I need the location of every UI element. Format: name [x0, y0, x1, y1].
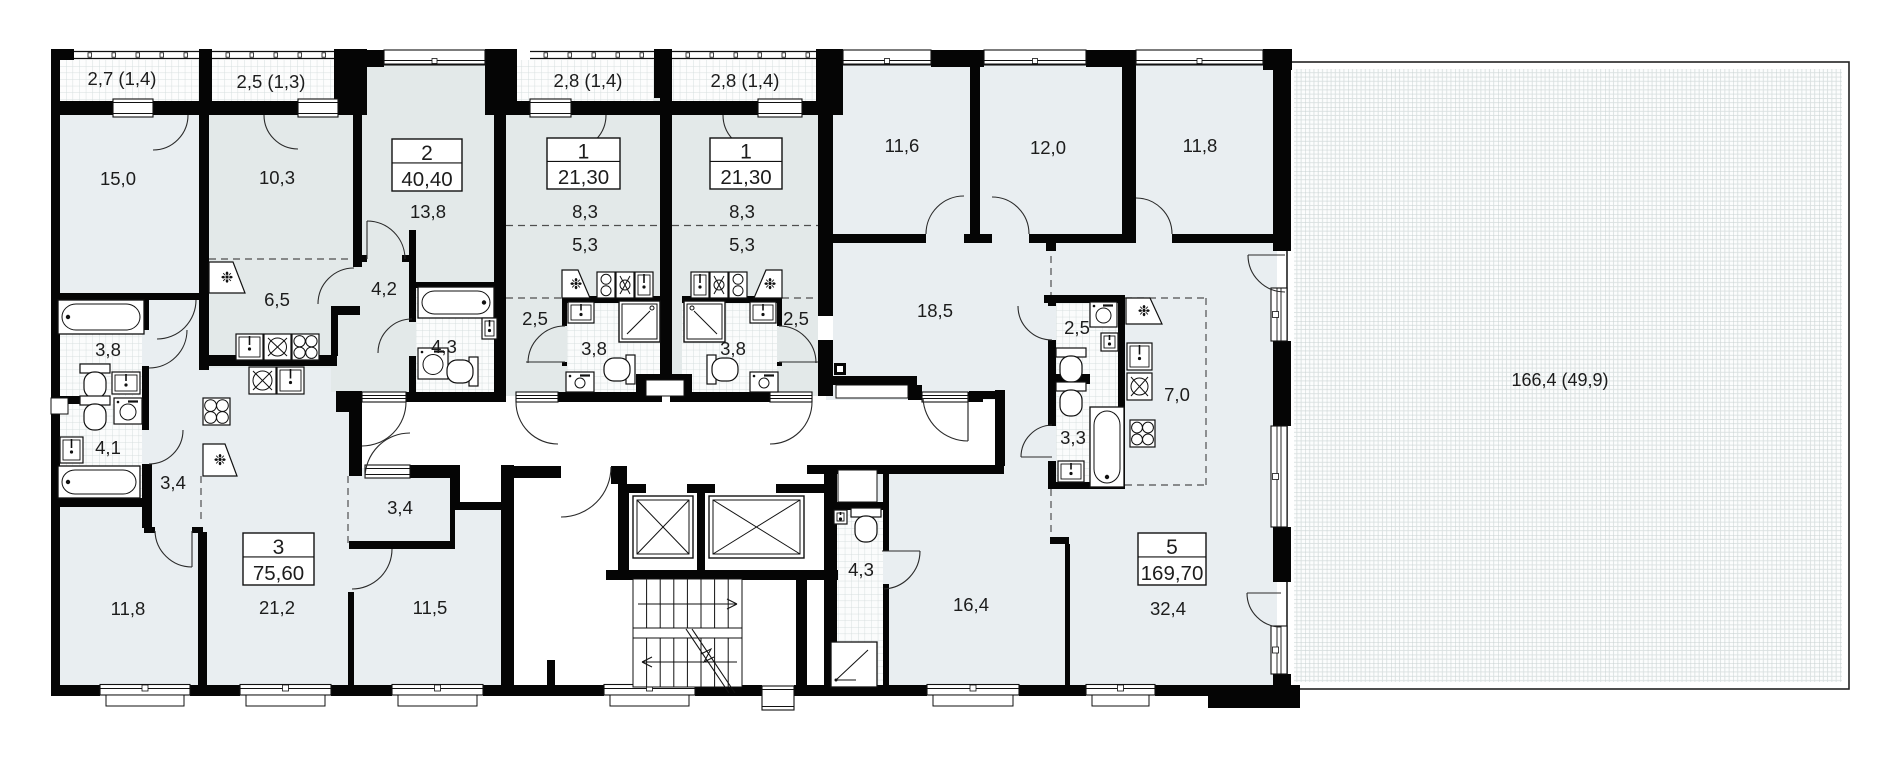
- svg-text:11,5: 11,5: [413, 597, 448, 618]
- svg-text:3,4: 3,4: [387, 497, 413, 518]
- svg-text:❉: ❉: [214, 452, 227, 469]
- svg-text:12,0: 12,0: [1030, 137, 1066, 158]
- svg-text:5,3: 5,3: [572, 234, 598, 255]
- svg-text:3,8: 3,8: [720, 338, 746, 359]
- svg-text:3: 3: [273, 536, 285, 559]
- svg-text:7,0: 7,0: [1164, 384, 1190, 405]
- svg-text:8,3: 8,3: [572, 201, 598, 222]
- svg-text:4,3: 4,3: [431, 336, 457, 357]
- svg-text:❉: ❉: [570, 276, 583, 293]
- svg-text:21,30: 21,30: [558, 166, 609, 189]
- svg-text:❉: ❉: [764, 276, 777, 293]
- svg-text:4,3: 4,3: [848, 559, 874, 580]
- svg-text:15,0: 15,0: [100, 168, 136, 189]
- svg-text:169,70: 169,70: [1141, 562, 1204, 585]
- svg-text:5: 5: [1166, 536, 1178, 559]
- svg-text:4,1: 4,1: [95, 437, 121, 458]
- svg-text:8,3: 8,3: [729, 201, 755, 222]
- svg-text:2,5: 2,5: [1064, 317, 1090, 338]
- svg-text:21,30: 21,30: [720, 166, 771, 189]
- svg-text:11,8: 11,8: [111, 598, 146, 619]
- svg-text:18,5: 18,5: [917, 300, 953, 321]
- svg-text:5,3: 5,3: [729, 234, 755, 255]
- svg-text:2,8 (1,4): 2,8 (1,4): [711, 70, 780, 91]
- svg-text:3,4: 3,4: [160, 472, 186, 493]
- svg-text:40,40: 40,40: [401, 168, 452, 191]
- svg-text:6,5: 6,5: [264, 289, 290, 310]
- svg-text:1: 1: [578, 140, 590, 163]
- svg-text:❉: ❉: [1138, 303, 1151, 320]
- svg-text:2,8 (1,4): 2,8 (1,4): [554, 70, 623, 91]
- svg-text:❉: ❉: [221, 270, 234, 287]
- svg-text:10,3: 10,3: [259, 167, 295, 188]
- svg-text:75,60: 75,60: [253, 562, 304, 585]
- svg-text:21,2: 21,2: [259, 597, 295, 618]
- svg-text:16,4: 16,4: [953, 594, 989, 615]
- svg-text:11,8: 11,8: [1183, 135, 1218, 156]
- svg-text:4,2: 4,2: [371, 278, 397, 299]
- svg-text:11,6: 11,6: [885, 135, 920, 156]
- svg-text:1: 1: [740, 140, 752, 163]
- svg-text:2,7 (1,4): 2,7 (1,4): [88, 68, 157, 89]
- svg-text:3,3: 3,3: [1060, 427, 1086, 448]
- svg-text:32,4: 32,4: [1150, 598, 1186, 619]
- svg-text:13,8: 13,8: [410, 201, 446, 222]
- svg-text:2,5 (1,3): 2,5 (1,3): [237, 71, 306, 92]
- svg-text:3,8: 3,8: [581, 338, 607, 359]
- svg-text:2: 2: [421, 142, 433, 165]
- svg-text:2,5: 2,5: [522, 308, 548, 329]
- svg-text:3,8: 3,8: [95, 339, 121, 360]
- svg-text:166,4 (49,9): 166,4 (49,9): [1511, 370, 1608, 390]
- svg-text:2,5: 2,5: [783, 308, 809, 329]
